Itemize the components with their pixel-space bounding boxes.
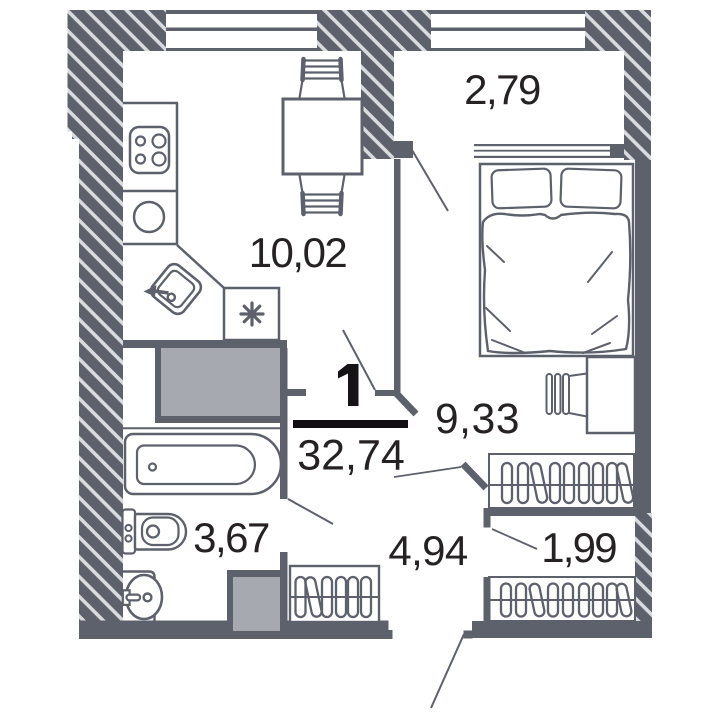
svg-text:3,67: 3,67 (193, 514, 269, 561)
svg-text:2,79: 2,79 (464, 66, 540, 113)
svg-text:10,02: 10,02 (249, 229, 347, 276)
svg-text:1,99: 1,99 (541, 524, 616, 571)
svg-text:4,94: 4,94 (388, 527, 468, 574)
svg-text:9,33: 9,33 (435, 396, 520, 443)
svg-text:32,74: 32,74 (297, 432, 405, 480)
